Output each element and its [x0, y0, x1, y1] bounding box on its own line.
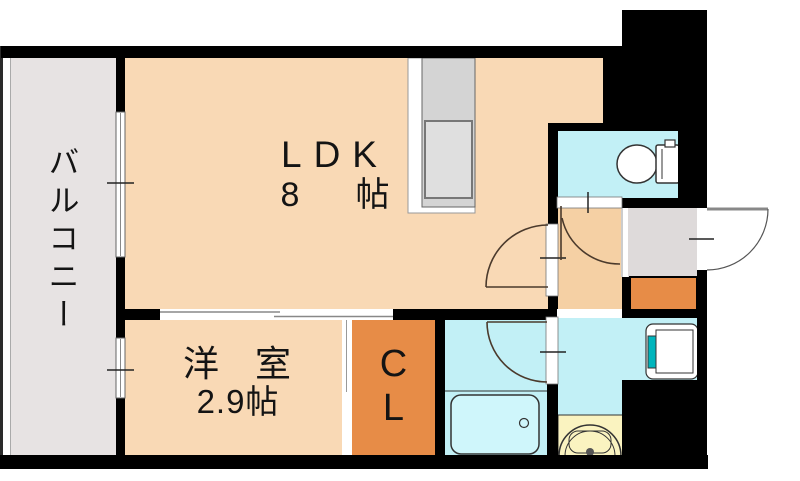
wall-segment [622, 380, 707, 468]
washing-machine [656, 330, 693, 373]
toilet-bowl [617, 145, 657, 183]
wall-segment [603, 46, 622, 131]
room-ldk-upper-right [548, 58, 603, 123]
washing-machine-tap [648, 336, 656, 368]
western-room-name: 洋 室 [138, 345, 338, 383]
wall-segment [1, 46, 622, 58]
ldk-size-unit: 帖 [355, 178, 389, 214]
closet-label-l: L [383, 389, 404, 429]
ldk-size: 8 帖 [235, 178, 435, 214]
balcony-label: バルコニー [44, 146, 77, 336]
wall-segment [622, 198, 707, 208]
wall-segment [116, 257, 125, 338]
wall-segment [435, 318, 445, 455]
western-room-size: 2.9帖 [138, 385, 338, 420]
room-hallway [557, 208, 622, 309]
western-room-label: 洋 室 2.9帖 [138, 345, 338, 419]
toilet-handle [665, 140, 675, 147]
bathroom-door-opening [546, 317, 558, 384]
ldk-door-opening [546, 224, 558, 296]
ldk-size-value: 8 [281, 178, 300, 214]
wall-segment [547, 384, 558, 455]
wall-segment [116, 398, 125, 457]
floor-plan: バルコニー LDK 8 帖 洋 室 2.9帖 C L [0, 0, 800, 481]
closet-label-c: C [380, 345, 407, 385]
wall-segment [548, 131, 558, 198]
ldk-name: LDK [235, 136, 435, 175]
wall-segment [622, 10, 707, 131]
bathtub [451, 395, 539, 454]
wall-segment [548, 296, 558, 309]
shoe-cabinet [630, 277, 697, 310]
wall-segment [627, 310, 707, 318]
wall-segment [548, 198, 558, 224]
closet-label: C L [352, 318, 435, 455]
entrance-door-swing [707, 209, 768, 270]
toilet-tank [656, 145, 679, 183]
wall-segment [548, 123, 678, 131]
washbasin-faucet [586, 448, 594, 456]
toilet-door-opening [557, 197, 622, 208]
wall-segment [116, 58, 125, 112]
wall-segment [678, 131, 707, 198]
balcony-outer-rail [0, 46, 3, 469]
wall-segment [0, 455, 708, 469]
room-entrance [628, 208, 697, 277]
ldk-label: LDK 8 帖 [235, 136, 435, 214]
